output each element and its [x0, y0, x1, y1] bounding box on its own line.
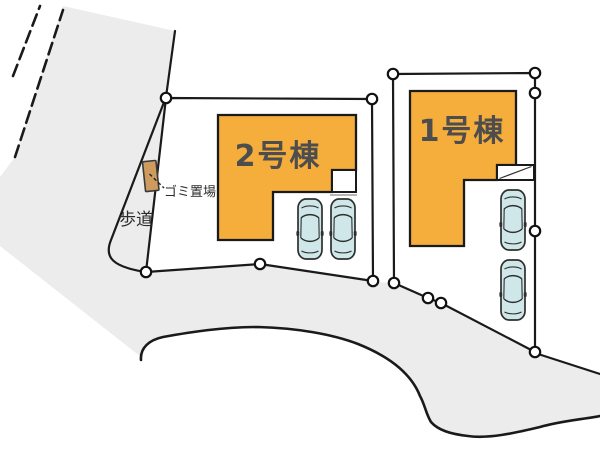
garbage-area-label: ゴミ置場 — [164, 184, 216, 200]
entrance-porch-building-1 — [497, 165, 534, 180]
boundary-marker — [530, 226, 540, 236]
road-dashed-edge-outer — [13, 6, 40, 76]
boundary-marker — [530, 347, 540, 357]
boundary-marker — [255, 259, 265, 269]
boundary-marker — [389, 278, 399, 288]
boundary-marker — [161, 93, 171, 103]
building-1-label: 1号棟 — [419, 114, 506, 149]
sidewalk-label: 歩道 — [119, 210, 153, 230]
entrance-porch-building-2 — [330, 170, 357, 195]
boundary-marker — [530, 88, 540, 98]
site-plan-page: 2号棟 1号棟 ゴミ置場 歩道 — [0, 0, 600, 450]
site-plan-canvas: 2号棟 1号棟 ゴミ置場 歩道 — [0, 0, 600, 450]
boundary-marker — [141, 267, 151, 277]
boundary-marker — [423, 293, 433, 303]
car-icon — [329, 199, 356, 259]
building-2-label: 2号棟 — [235, 139, 322, 174]
car-icon — [499, 260, 526, 320]
porch-rect — [332, 170, 356, 192]
boundary-marker — [436, 298, 446, 308]
boundary-marker — [367, 94, 377, 104]
boundary-marker — [530, 68, 540, 78]
boundary-marker — [368, 276, 378, 286]
car-icon — [296, 199, 323, 259]
boundary-marker — [388, 69, 398, 79]
car-icon — [499, 190, 526, 250]
